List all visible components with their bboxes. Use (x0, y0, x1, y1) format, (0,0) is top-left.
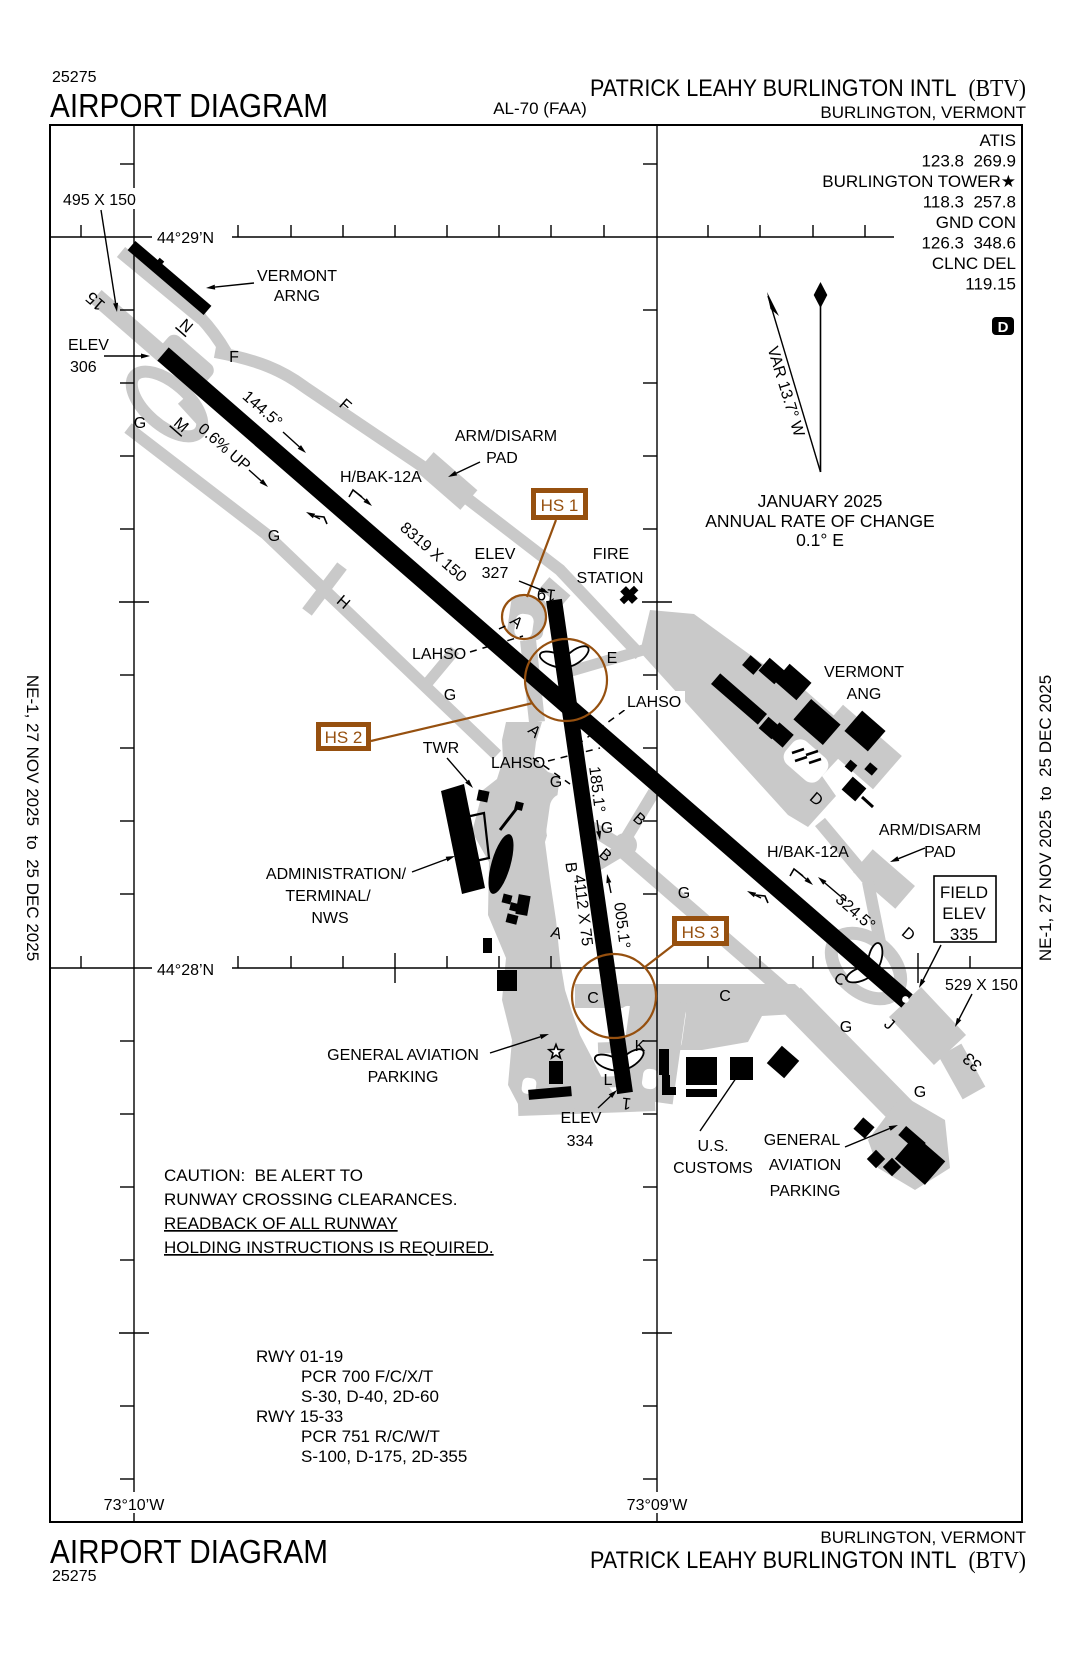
svg-text:ARM/DISARM: ARM/DISARM (879, 822, 981, 839)
svg-text:CLNC DEL: CLNC DEL (932, 254, 1016, 273)
svg-text:LAHSO: LAHSO (627, 694, 681, 711)
svg-text:BURLINGTON, VERMONT: BURLINGTON, VERMONT (820, 103, 1026, 122)
svg-text:PARKING: PARKING (368, 1069, 439, 1086)
svg-text:AL-70 (FAA): AL-70 (FAA) (493, 99, 587, 118)
svg-text:G: G (914, 1084, 926, 1101)
svg-text:F: F (229, 349, 239, 366)
svg-text:L: L (604, 1072, 613, 1089)
svg-text:S-30, D-40, 2D-60: S-30, D-40, 2D-60 (301, 1387, 439, 1406)
svg-text:STATION: STATION (577, 570, 644, 587)
svg-text:PCR 751 R/C/W/T: PCR 751 R/C/W/T (301, 1427, 440, 1446)
svg-text:VERMONT: VERMONT (257, 268, 337, 285)
svg-text:U.S.: U.S. (697, 1138, 728, 1155)
svg-text:HOLDING INSTRUCTIONS IS REQUIR: HOLDING INSTRUCTIONS IS REQUIRED. (164, 1238, 494, 1257)
svg-text:VERMONT: VERMONT (824, 664, 904, 681)
svg-text:19: 19 (536, 584, 557, 605)
svg-text:NE-1, 27 NOV 2025 to 25 DEC: NE-1, 27 NOV 2025 to 25 DEC 2025 (1036, 675, 1055, 961)
svg-text:G: G (268, 528, 280, 545)
svg-text:ELEV: ELEV (942, 904, 986, 923)
svg-text:AIRPORT DIAGRAM: AIRPORT DIAGRAM (50, 1533, 328, 1570)
svg-text:E: E (607, 650, 618, 667)
svg-text:44°29’N: 44°29’N (157, 230, 214, 247)
svg-text:PATRICK LEAHY BURLINGTON INTL: PATRICK LEAHY BURLINGTON INTL (BTV) (590, 1547, 1026, 1574)
svg-text:FIRE: FIRE (593, 546, 629, 563)
svg-text:ELEV: ELEV (475, 546, 516, 563)
svg-text:PAD: PAD (924, 844, 956, 861)
svg-text:73°10’W: 73°10’W (104, 1497, 166, 1514)
svg-text:AVIATION: AVIATION (769, 1157, 841, 1174)
svg-text:RUNWAY CROSSING CLEARANCES.: RUNWAY CROSSING CLEARANCES. (164, 1190, 457, 1209)
svg-text:123.8 269.9: 123.8 269.9 (921, 152, 1016, 171)
svg-text:RWY 01-19: RWY 01-19 (256, 1347, 343, 1366)
svg-text:HS 2: HS 2 (325, 728, 363, 747)
svg-text:FIELD: FIELD (940, 883, 988, 902)
svg-text:CUSTOMS: CUSTOMS (673, 1160, 753, 1177)
svg-text:G: G (678, 885, 690, 902)
svg-text:NE-1, 27 NOV 2025 to 25 DEC: NE-1, 27 NOV 2025 to 25 DEC 2025 (23, 675, 42, 961)
svg-text:NWS: NWS (311, 910, 348, 927)
svg-text:126.3 348.6: 126.3 348.6 (921, 234, 1016, 253)
svg-text:H/BAK-12A: H/BAK-12A (767, 844, 849, 861)
svg-text:LAHSO: LAHSO (491, 755, 545, 772)
svg-text:ADMINISTRATION/: ADMINISTRATION/ (266, 866, 407, 883)
svg-text:CAUTION: BE ALERT TO: CAUTION: BE ALERT TO (164, 1166, 363, 1185)
svg-text:RWY 15-33: RWY 15-33 (256, 1407, 343, 1426)
svg-text:HS 1: HS 1 (541, 496, 579, 515)
svg-text:119.15: 119.15 (965, 275, 1016, 294)
svg-text:GND CON: GND CON (936, 213, 1016, 232)
svg-text:327: 327 (482, 565, 509, 582)
svg-text:H/BAK-12A: H/BAK-12A (340, 469, 422, 486)
svg-text:335: 335 (950, 925, 978, 944)
svg-text:G: G (444, 687, 456, 704)
svg-text:PARKING: PARKING (770, 1183, 841, 1200)
svg-text:ELEV: ELEV (68, 337, 109, 354)
svg-text:1: 1 (621, 1094, 632, 1114)
svg-text:AIRPORT DIAGRAM: AIRPORT DIAGRAM (50, 87, 328, 124)
svg-text:G: G (134, 415, 146, 432)
svg-text:READBACK OF ALL RUNWAY: READBACK OF ALL RUNWAY (164, 1214, 398, 1233)
svg-text:ANG: ANG (847, 686, 882, 703)
svg-text:TWR: TWR (423, 740, 459, 757)
svg-text:334: 334 (567, 1133, 594, 1150)
svg-text:TERMINAL/: TERMINAL/ (285, 888, 371, 905)
svg-text:C: C (587, 990, 599, 1007)
svg-text:ANNUAL RATE OF CHANGE: ANNUAL RATE OF CHANGE (705, 511, 934, 531)
svg-text:PCR 700 F/C/X/T: PCR 700 F/C/X/T (301, 1367, 433, 1386)
svg-text:ELEV: ELEV (561, 1110, 602, 1127)
svg-text:S-100, D-175, 2D-355: S-100, D-175, 2D-355 (301, 1447, 467, 1466)
svg-text:BURLINGTON, VERMONT: BURLINGTON, VERMONT (820, 1528, 1026, 1547)
svg-text:BURLINGTON TOWER★: BURLINGTON TOWER★ (822, 172, 1016, 191)
svg-text:GENERAL: GENERAL (764, 1132, 841, 1149)
svg-text:G: G (840, 1019, 852, 1036)
svg-text:PAD: PAD (486, 450, 518, 467)
svg-text:D: D (998, 319, 1009, 336)
svg-text:25275: 25275 (52, 1568, 97, 1585)
svg-text:44°28’N: 44°28’N (157, 962, 214, 979)
svg-text:LAHSO: LAHSO (412, 646, 466, 663)
svg-text:G: G (601, 820, 613, 837)
svg-text:ARNG: ARNG (274, 288, 320, 305)
svg-text:K: K (635, 1038, 646, 1055)
svg-text:B: B (561, 861, 579, 874)
svg-text:529 X 150: 529 X 150 (945, 977, 1018, 994)
svg-text:495 X 150: 495 X 150 (63, 192, 136, 209)
svg-text:306: 306 (70, 359, 97, 376)
svg-text:C: C (719, 988, 731, 1005)
svg-text:PATRICK LEAHY BURLINGTON INTL: PATRICK LEAHY BURLINGTON INTL (BTV) (590, 75, 1026, 102)
svg-text:0.1° E: 0.1° E (796, 530, 844, 550)
svg-text:HS 3: HS 3 (682, 923, 720, 942)
svg-text:73°09’W: 73°09’W (627, 1497, 689, 1514)
svg-text:ARM/DISARM: ARM/DISARM (455, 428, 557, 445)
svg-text:25275: 25275 (52, 69, 97, 86)
svg-text:ATIS: ATIS (979, 131, 1016, 150)
svg-text:GENERAL AVIATION: GENERAL AVIATION (327, 1047, 479, 1064)
svg-text:118.3 257.8: 118.3 257.8 (923, 193, 1016, 212)
svg-text:JANUARY 2025: JANUARY 2025 (758, 491, 883, 511)
svg-text:G: G (550, 774, 562, 791)
